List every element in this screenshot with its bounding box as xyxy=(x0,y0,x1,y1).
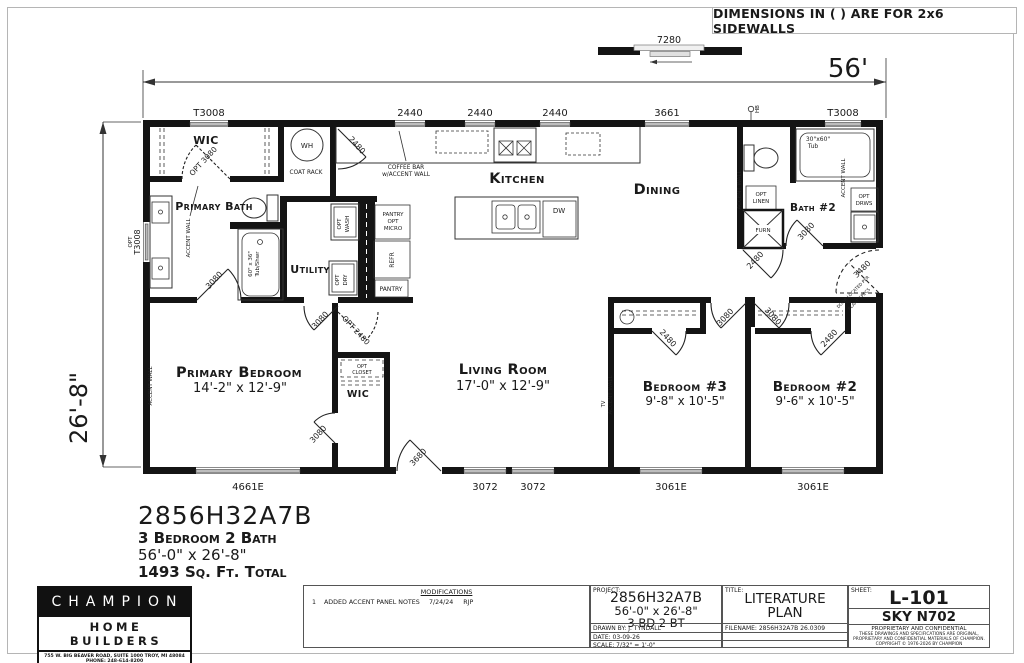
refrigerator-label: REFR xyxy=(389,252,396,268)
dryer-label-1: OPT xyxy=(335,274,341,286)
dim-3061e-b: 3061E xyxy=(797,482,829,493)
modifications-box: MODIFICATIONS 1 ADDED ACCENT PANEL NOTES… xyxy=(303,585,590,648)
accent-wall-dining: ACCENT WALL xyxy=(737,170,743,210)
modifications-heading: MODIFICATIONS xyxy=(304,588,589,596)
coffee-bar-label-1: COFFEE BAR xyxy=(388,165,424,171)
coffee-bar-label-2: w/ACCENT WALL xyxy=(382,172,431,178)
date-row: DATE: 03-09-26 xyxy=(591,632,721,640)
door-furnace-label: 2480 xyxy=(745,250,765,271)
opt-linen-label-1: OPT xyxy=(755,192,767,198)
accent-wall-primary-bath: ACCENT WALL xyxy=(186,218,192,258)
dim-3061e-a: 3061E xyxy=(655,482,687,493)
door-wic2-opt: OPT 2480 xyxy=(338,312,378,347)
door-wic2-opt-label: OPT 2480 xyxy=(340,314,372,347)
logo-champion-text: CHAMPION xyxy=(39,588,190,615)
dim-3072-b: 3072 xyxy=(520,482,545,493)
label-bedroom2: Bedroom #2 xyxy=(773,379,858,395)
water-heater: WH xyxy=(291,129,323,161)
bath2-tub-label-1: 30"x60" xyxy=(806,136,831,143)
dim-3072-a: 3072 xyxy=(472,482,497,493)
door-primary-bath: 3080 xyxy=(197,269,241,300)
door-bedroom2: 3080 xyxy=(754,303,789,328)
drawing-title-line1: LITERATURE xyxy=(723,592,847,606)
label-living: Living Room xyxy=(459,362,548,378)
door-bedroom2-closet-label: 2480 xyxy=(819,328,839,349)
door-utility-label: 3080 xyxy=(310,310,330,331)
dim-left-window: T3008 xyxy=(133,229,142,255)
dim-4661e: 4661E xyxy=(232,482,264,493)
drawing-title-line2: PLAN xyxy=(723,606,847,620)
logo-address: 755 W. BIG BEAVER ROAD, SUITE 1000 TROY,… xyxy=(39,652,190,663)
proprietary-note: PROPRIETARY AND CONFIDENTIAL THESE DRAWI… xyxy=(849,624,989,647)
wic2-closet: OPT CLOSET xyxy=(341,360,383,385)
coffee-bar-leader xyxy=(399,131,406,161)
champion-logo: CHAMPION HOME BUILDERS 755 W. BIG BEAVER… xyxy=(37,586,192,663)
empty-row-2 xyxy=(723,640,847,648)
plan-size: 56'-0" x 26'-8" xyxy=(138,547,312,564)
room-labels: WIC Primary Bath Utility Kitchen Dining … xyxy=(175,134,857,408)
accent-wall-bath2: ACCENT WALL xyxy=(841,158,847,198)
label-primary-bath: Primary Bath xyxy=(175,200,253,213)
window-2440-b xyxy=(465,121,495,127)
drawing-title: LITERATURE PLAN xyxy=(723,592,847,620)
primary-vanity xyxy=(150,196,172,288)
washer-label-1: OPT xyxy=(337,218,343,230)
window-t3008-left-wall xyxy=(144,222,150,262)
dim-t3008-right: T3008 xyxy=(826,108,859,119)
hose-bib: HB xyxy=(748,105,761,120)
accent-wall-primary-bedroom: ACCENT WALL xyxy=(148,366,154,406)
window-2440-a xyxy=(395,121,425,127)
door-primary-bedroom: 3080 xyxy=(308,413,335,445)
opt-drws-label-1: OPT xyxy=(858,194,870,200)
door-bedroom2-label: 3080 xyxy=(763,306,783,327)
window-3061e-a xyxy=(640,468,702,474)
label-bedroom3-size: 9'-8" x 10'-5" xyxy=(645,394,724,408)
project-label: PROJECT: xyxy=(593,587,620,594)
literature-plan-page: DIMENSIONS IN ( ) ARE FOR 2x6 SIDEWALLS … xyxy=(0,0,1024,663)
dim-2440-a: 2440 xyxy=(397,108,422,119)
door-primary-bath-label: 3080 xyxy=(204,270,224,291)
depth-dim-label: 26'-8" xyxy=(65,372,93,444)
accent-wall-bedroom3: ACCENT WALL xyxy=(608,375,614,415)
mod-row-initials: RJP xyxy=(463,599,473,606)
bath2-tub: 30"x60" Tub xyxy=(796,129,874,181)
dim-2440-b: 2440 xyxy=(467,108,492,119)
window-2440-c xyxy=(540,121,570,127)
furnace-label: FURN xyxy=(755,228,770,234)
slider-dim-label: 7280 xyxy=(657,35,681,46)
opt-linen-label-2: LINEN xyxy=(753,199,769,205)
label-bedroom3: Bedroom #3 xyxy=(643,379,728,395)
modification-row: 1 ADDED ACCENT PANEL NOTES 7/24/24 RJP xyxy=(312,599,589,606)
door-bath2: 3080 xyxy=(786,220,823,246)
closet-light xyxy=(620,310,634,324)
dim-2440-c: 2440 xyxy=(542,108,567,119)
label-primary-bedroom-size: 14'-2" x 12'-9" xyxy=(193,381,287,396)
plan-title-block: 2856H32A7B 3 Bedroom 2 Bath 56'-0" x 26'… xyxy=(138,502,312,581)
door-bedroom3-closet-label: 2480 xyxy=(658,328,678,349)
hose-bib-label: HB xyxy=(755,105,761,113)
label-primary-bedroom: Primary Bedroom xyxy=(176,365,302,381)
mod-row-text: ADDED ACCENT PANEL NOTES xyxy=(324,599,429,606)
label-bedroom2-size: 9'-6" x 10'-5" xyxy=(775,394,854,408)
plan-config: 3 Bedroom 2 Bath xyxy=(138,530,312,547)
pantry-column: PANTRY OPT MICRO REFR PANTRY xyxy=(374,205,410,297)
pantry-micro-3: MICRO xyxy=(384,226,403,232)
label-kitchen: Kitchen xyxy=(489,171,545,187)
dim-3661: 3661 xyxy=(654,108,679,119)
width-dim-label: 56' xyxy=(828,54,868,84)
window-3661 xyxy=(645,121,689,127)
project-box: PROJECT: 2856H32A7B 56'-0" x 26'-8" 3 BD… xyxy=(590,585,722,648)
label-wic: WIC xyxy=(193,134,219,147)
opt-cabinet-dashed-2 xyxy=(566,133,600,155)
pantry-micro-1: PANTRY xyxy=(382,212,404,218)
plan-area: 1493 Sq. Ft. Total xyxy=(138,564,312,581)
pantry-label: PANTRY xyxy=(380,286,403,293)
sheet-box: SHEET: L-101 SKY N702 PROPRIETARY AND CO… xyxy=(848,585,990,648)
door-coat-label: 2480 xyxy=(347,135,367,156)
label-wic2: WIC xyxy=(347,389,369,400)
label-living-size: 17'-0" x 12'-9" xyxy=(456,379,550,394)
opt-slider-detail: 7280 xyxy=(598,35,742,64)
dryer: OPT DRY xyxy=(329,261,357,295)
furnace: FURN xyxy=(743,210,783,248)
primary-tub-label-1: 60" x 36" xyxy=(248,251,254,277)
bath2-toilet xyxy=(744,145,778,171)
door-bedroom2-closet: 2480 xyxy=(811,328,845,355)
primary-tub-label-2: Tub/Shwr xyxy=(255,251,261,278)
sheet-model: SKY N702 xyxy=(849,608,989,624)
filename-row: FILENAME: 2856H32A7B 26.0309 xyxy=(723,623,847,632)
window-3072-a xyxy=(464,468,506,474)
range xyxy=(494,128,536,162)
title-box: TITLE: LITERATURE PLAN FILENAME: 2856H32… xyxy=(722,585,848,648)
plan-model: 2856H32A7B xyxy=(138,502,312,530)
door-wic-opt: OPT 3080 xyxy=(182,145,230,179)
door-bath2-label: 3080 xyxy=(796,221,816,242)
proprietary-line4: COPYRIGHT © 1976-2026 BY CHAMPION xyxy=(849,642,989,647)
primary-tub: 60" x 36" Tub/Shwr xyxy=(238,229,283,300)
bath2-tub-label-2: Tub xyxy=(807,143,819,150)
opt-drws-label-2: DRWS xyxy=(856,201,873,207)
empty-row-1 xyxy=(723,632,847,640)
door-entry: 3680 xyxy=(397,440,441,471)
mod-row-number: 1 xyxy=(312,599,324,606)
coat-rack-label: COAT RACK xyxy=(290,170,323,176)
tv-label: TV xyxy=(601,400,607,408)
dryer-label-2: DRY xyxy=(343,274,349,286)
window-4661e xyxy=(196,468,300,474)
door-entry-label: 3680 xyxy=(408,447,428,468)
window-t3008-left-top xyxy=(190,121,228,127)
door-bedroom3: 3080 xyxy=(711,303,746,328)
opt-closet-label-2: CLOSET xyxy=(352,370,372,376)
title-label: TITLE: xyxy=(725,587,743,594)
label-bath2: Bath #2 xyxy=(790,202,836,214)
window-t3008-right-top xyxy=(825,121,861,127)
scale-row: SCALE: 7/32" = 1'-0" xyxy=(591,640,721,648)
dishwasher-label: DW xyxy=(553,207,565,215)
label-utility: Utility xyxy=(290,263,330,276)
dim-t3008-left: T3008 xyxy=(192,108,225,119)
logo-phone-line: PHONE: 248-614-8200 xyxy=(39,659,190,663)
washer: OPT WASH xyxy=(331,204,359,240)
label-dining: Dining xyxy=(634,182,681,198)
opt-cabinet-dashed xyxy=(436,131,488,153)
door-primary-bedroom-label: 3080 xyxy=(308,424,328,445)
sheet-label: SHEET: xyxy=(851,587,872,594)
door-bedroom3-closet: 2480 xyxy=(652,328,686,355)
door-furnace: 2480 xyxy=(743,250,783,278)
mod-row-date: 7/24/24 xyxy=(429,599,453,606)
water-heater-label: WH xyxy=(301,142,313,150)
kitchen-island: DW xyxy=(455,197,578,239)
washer-label-2: WASH xyxy=(345,216,351,233)
window-3061e-b xyxy=(782,468,844,474)
pantry-micro-2: OPT xyxy=(387,219,399,225)
opt-drws: OPT DRWS xyxy=(851,188,878,242)
window-3072-b xyxy=(512,468,554,474)
opt-linen: OPT LINEN xyxy=(746,186,776,210)
drawn-by-row: DRAWN BY: J. TYNDALL xyxy=(591,623,721,632)
logo-home-builders-text: HOME BUILDERS xyxy=(39,615,190,652)
